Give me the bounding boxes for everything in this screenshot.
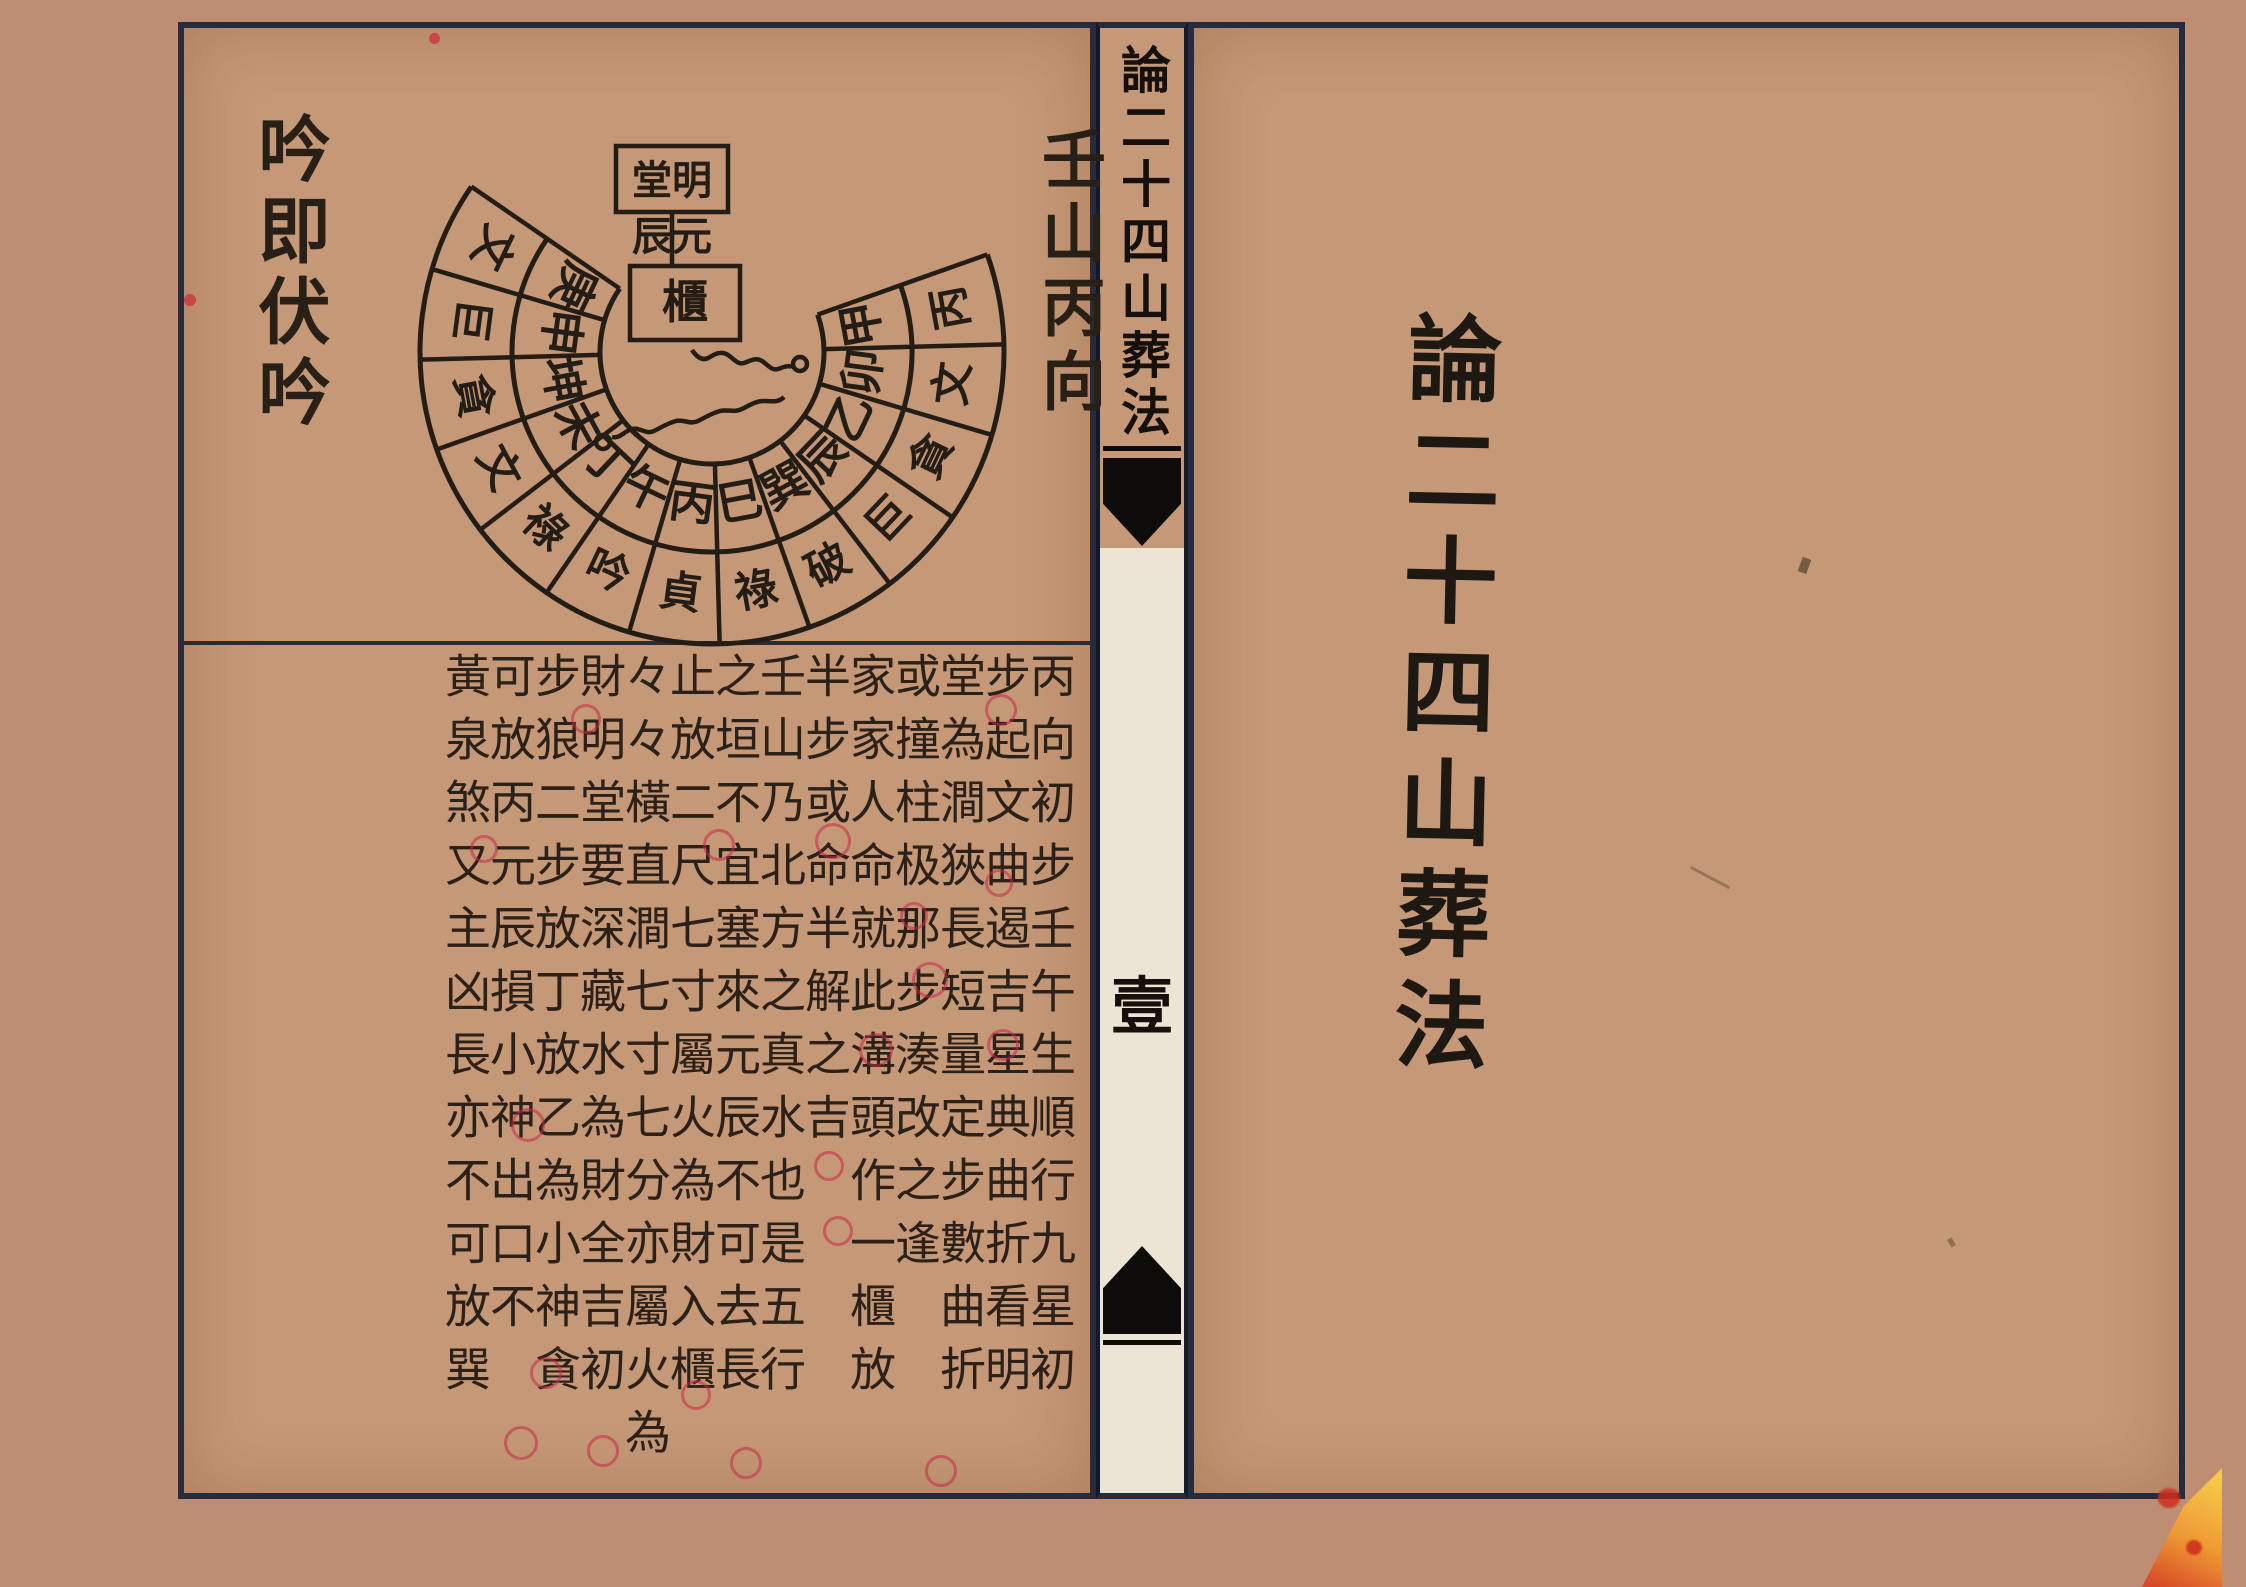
fishtail-top-ornament [1103,458,1181,546]
text-column: 步起文曲遏吉星典曲折看明 [982,652,1027,1510]
text-column: 半步或命半解之吉 [802,652,847,1510]
text-column: 黃泉煞又主凶長亦不可放巽 [442,652,487,1510]
vermillion-circle [504,1426,538,1460]
vermillion-circle [987,1029,1019,1061]
vermillion-circle [815,823,851,859]
vermillion-dot [429,33,440,44]
spine-rule-bottom [1103,1340,1181,1345]
text-column: 々々橫直澗七寸七分亦屬火為 [622,652,667,1510]
orientation-label: 壬山丙向 [1022,126,1114,422]
vermillion-circle [530,1357,562,1389]
vermillion-circle [511,1108,545,1142]
text-column: 或撞柱极那步湊改之逢 [892,652,937,1510]
vermillion-circle [703,829,735,861]
vermillion-circle [730,1447,762,1479]
text-column: 可放丙元辰損小神出口不 [487,652,532,1510]
vermillion-circle [681,1380,711,1410]
book-scan: 論二十四山葬法 壹 吟即伏吟 壬山丙向 丙向初步壬午生順行九星初 步起文曲遏吉星… [0,0,2246,1587]
vermillion-circle [985,694,1017,726]
vermillion-circle [859,1033,893,1067]
vermillion-circle [900,902,928,930]
text-column: 家家人命就此溝頭作一櫃放 [847,652,892,1510]
corner-stain-spot [2186,1540,2202,1555]
spine-rule-top [1103,446,1181,451]
vermillion-circle [587,1435,619,1467]
text-column: 堂為澗狹長短量定步數曲折 [937,652,982,1510]
vermillion-circle [985,869,1013,897]
vermillion-circle [571,704,601,734]
vermillion-circle [912,962,948,998]
page-number: 壹 [1100,956,1184,1046]
right-page-title: 論二十四山葬法 [1364,309,1516,1089]
corner-stain-spot [2158,1488,2180,1508]
vermillion-dot [184,294,196,306]
vermillion-circle [925,1455,957,1487]
section-divider-line [184,641,1092,645]
text-column: 財明堂要深藏水為財全吉初 [577,652,622,1510]
vermillion-circle [823,1216,853,1246]
text-column: 之垣不宜塞來元辰不可去長 [712,652,757,1510]
right-page [1188,22,2185,1499]
spine-title: 論二十四山葬法 [1106,44,1178,443]
vermillion-circle [470,835,498,863]
corner-note: 吟即伏吟 [236,112,341,436]
text-column: 丙向初步壬午生順行九星初 [1027,652,1072,1510]
vermillion-circle [814,1151,844,1181]
text-column: 壬山乃北方之真水也是五行 [757,652,802,1510]
